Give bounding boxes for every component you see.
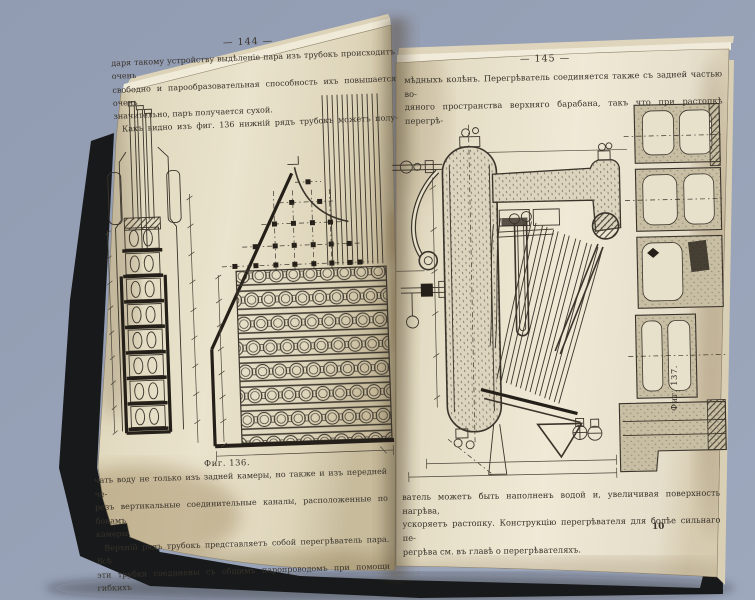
circular-header xyxy=(592,213,619,240)
right-top-paragraph: мѣдныхъ колѣнъ. Перегрѣватель соединяетс… xyxy=(404,67,723,128)
left-top-paragraphs: даря такому устройству выдѣленіе пара из… xyxy=(111,45,398,137)
paragraph-lines: мѣдныхъ колѣнъ. Перегрѣватель соединяетс… xyxy=(404,67,723,128)
paragraph-lines: ватель можетъ быть наполненъ водой и, ув… xyxy=(402,487,721,546)
open-book-photo: — 144 — даря такому устройству выдѣленіе… xyxy=(0,0,755,600)
left-bottom-paragraphs: чать воду не только изъ задней камеры, н… xyxy=(94,465,391,596)
paragraph-lines: Верхній рядъ трубокъ представляетъ собой… xyxy=(96,532,391,595)
paragraph-lines: чать воду не только изъ задней камеры, н… xyxy=(94,465,389,528)
tube-bank-grid xyxy=(236,266,392,443)
figure-137-caption: Фиг. 137. xyxy=(670,351,684,411)
vertical-water-drum xyxy=(441,124,502,445)
signature-number: 10 xyxy=(652,522,682,532)
